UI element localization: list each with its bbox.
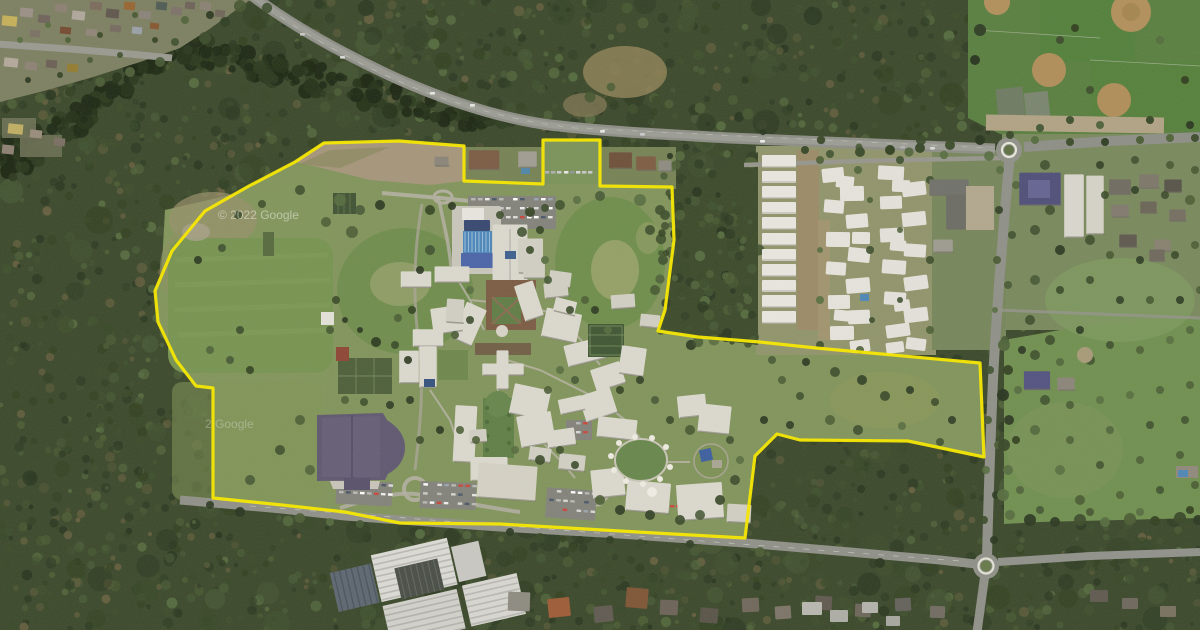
- svg-text:2 Google: 2 Google: [205, 417, 254, 431]
- svg-text:© 2022 Google: © 2022 Google: [218, 208, 299, 222]
